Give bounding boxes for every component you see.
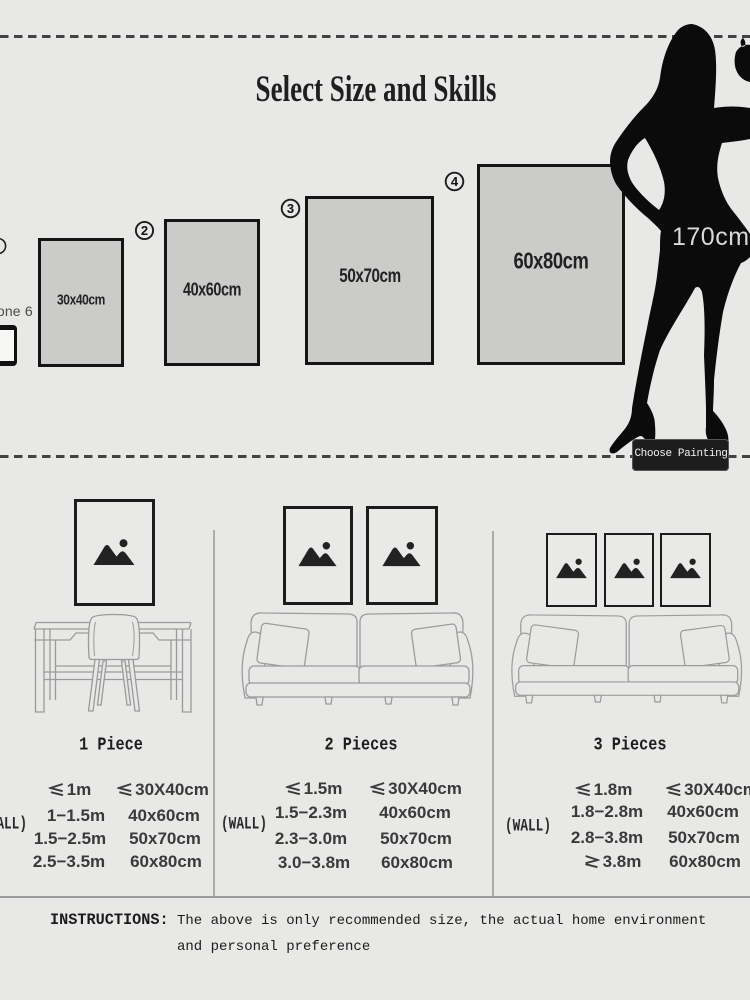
svg-text:2: 2 xyxy=(141,223,148,238)
svg-text:4: 4 xyxy=(451,174,459,189)
svg-text:3: 3 xyxy=(287,201,294,216)
